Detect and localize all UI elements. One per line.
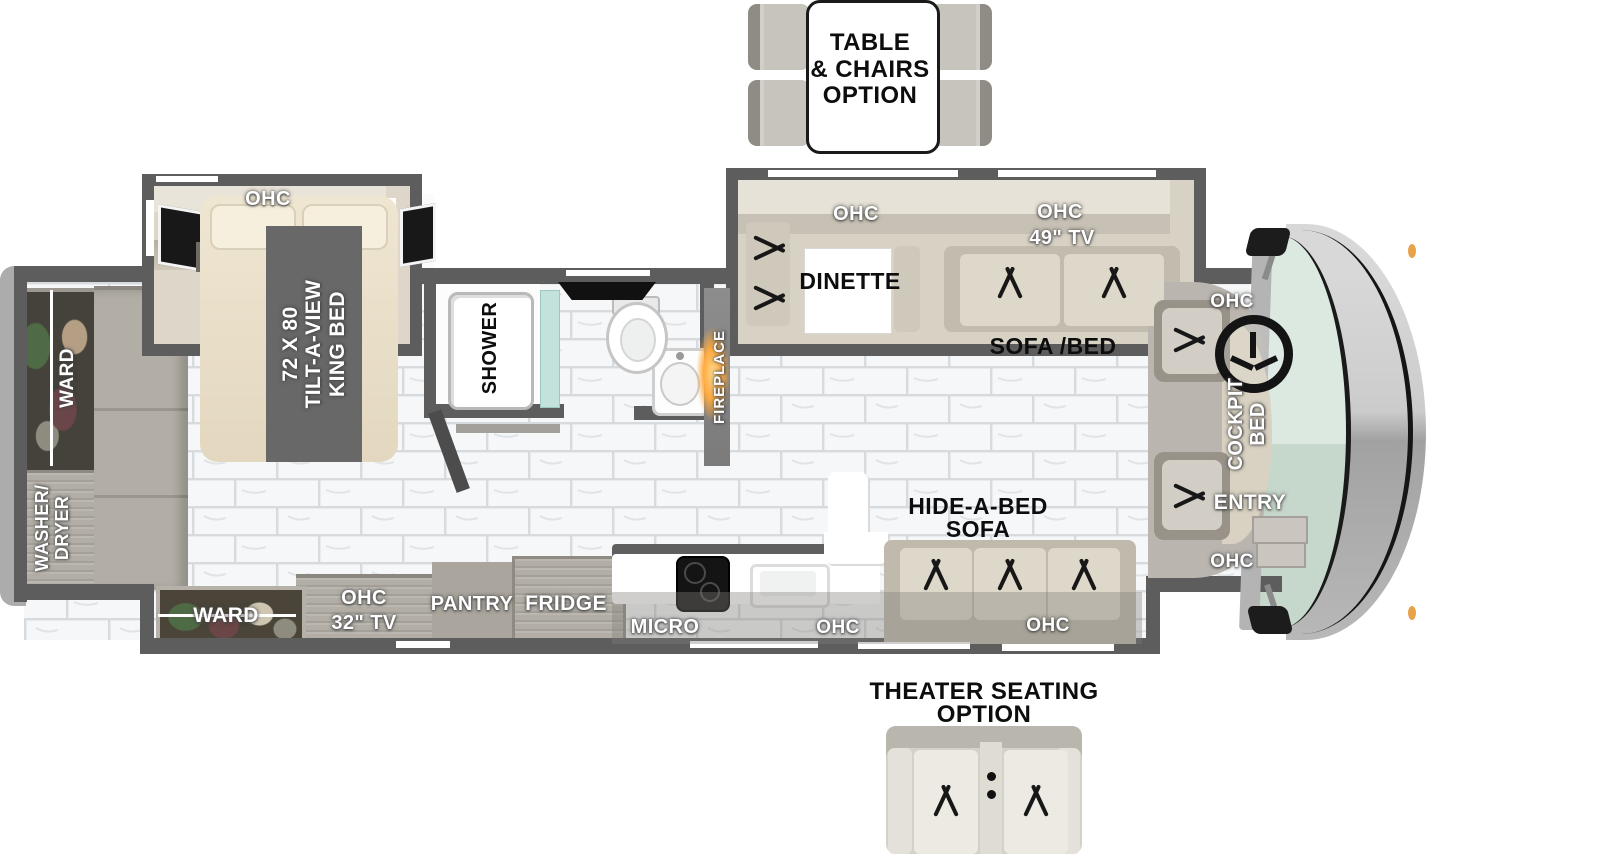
stove-burner (684, 562, 706, 584)
seat-mark (1014, 778, 1058, 818)
window-slit (396, 641, 450, 648)
dining-chair (748, 80, 810, 146)
skylight (558, 282, 656, 300)
slide-cabinet-highlight (738, 180, 1170, 214)
washer-dryer-label: WASHER/ DRYER (29, 463, 75, 593)
seat-mark (1172, 474, 1212, 518)
seat-mark (914, 552, 958, 592)
cupholder (987, 772, 996, 781)
seat-mark (1172, 318, 1212, 362)
cockpit-bed-label: COCKPIT BED (1224, 349, 1270, 499)
awning-slit (998, 170, 1156, 177)
seat-mark (924, 778, 968, 818)
tv-ohc-label: OHC (1030, 201, 1090, 223)
cockpit-ohc-top-label: OHC (1202, 292, 1262, 312)
dining-chair (748, 4, 810, 70)
hide-a-bed-label-line1: HIDE-A-BED (898, 494, 1058, 518)
seat-mark (1092, 260, 1136, 300)
bath-wall-left (424, 276, 436, 418)
seat-mark (1062, 552, 1106, 592)
side-mirror-bottom (1247, 606, 1294, 634)
cockpit-ohc-bottom-label: OHC (1202, 552, 1262, 572)
entry-step (1256, 542, 1306, 568)
seat-mark (988, 260, 1032, 300)
toilet-seat (620, 318, 656, 362)
ohc-32tv-label-line1: OHC (324, 588, 404, 608)
kitchen-ohc-label: OHC (806, 618, 870, 638)
rv-floorplan: TABLE & CHAIRS OPTION (0, 0, 1600, 854)
bedroom-ohc-label: OHC (238, 188, 298, 210)
wall-step-rear (140, 584, 154, 654)
seat-mark (988, 552, 1032, 592)
shower-label: SHOWER (477, 278, 503, 418)
awning-slit (156, 176, 218, 182)
king-bed-label: 72 X 80 TILT-A-VIEW KING BED (266, 226, 362, 462)
marker-light (1408, 606, 1416, 620)
hide-a-bed-label-line2: SOFA (938, 518, 1018, 540)
front-ward-label: WARD (176, 604, 276, 628)
island-counter (828, 472, 868, 538)
sofa-ohc-label: OHC (1016, 616, 1080, 636)
sofa-bed-label: SOFA /BED (973, 334, 1133, 358)
pantry-label: PANTRY (430, 592, 514, 616)
theater-armrest (888, 748, 912, 854)
bath-faucet (676, 352, 684, 360)
island-counter-foot (824, 532, 888, 564)
shower-glass (540, 290, 560, 408)
rear-wall (14, 268, 27, 602)
fireplace-label: FIREPLACE (709, 292, 729, 462)
top-wall-rear (14, 266, 146, 282)
door-track (456, 424, 560, 433)
rear-ward-label: WARD (56, 318, 80, 438)
ohc-32tv-label-line2: 32" TV (314, 612, 414, 634)
micro-label: MICRO (622, 616, 708, 638)
bath-sink-basin (660, 362, 700, 406)
marker-light (1408, 244, 1416, 258)
dinette-label: DINETTE (780, 269, 920, 293)
fridge-label: FRIDGE (522, 592, 610, 616)
wardrobe-rail (50, 290, 53, 466)
window-slit (1002, 644, 1114, 651)
entry-label: ENTRY (1208, 492, 1292, 514)
entry-step (1252, 516, 1308, 544)
bedroom-window-left (146, 200, 154, 256)
theater-option-label-line2: OPTION (944, 704, 1024, 726)
cupholder (987, 790, 996, 799)
seat-mark (752, 226, 792, 270)
table-chairs-option-label: TABLE & CHAIRS OPTION (808, 26, 932, 114)
dinette-ohc-label: OHC (826, 203, 886, 225)
bottom-wall-entry (1152, 576, 1282, 592)
window-slit (566, 270, 650, 276)
corner-window-right (400, 203, 436, 267)
tv49-label: 49" TV (1012, 227, 1112, 249)
side-mirror-top (1245, 228, 1292, 256)
awning-slit (768, 170, 958, 177)
